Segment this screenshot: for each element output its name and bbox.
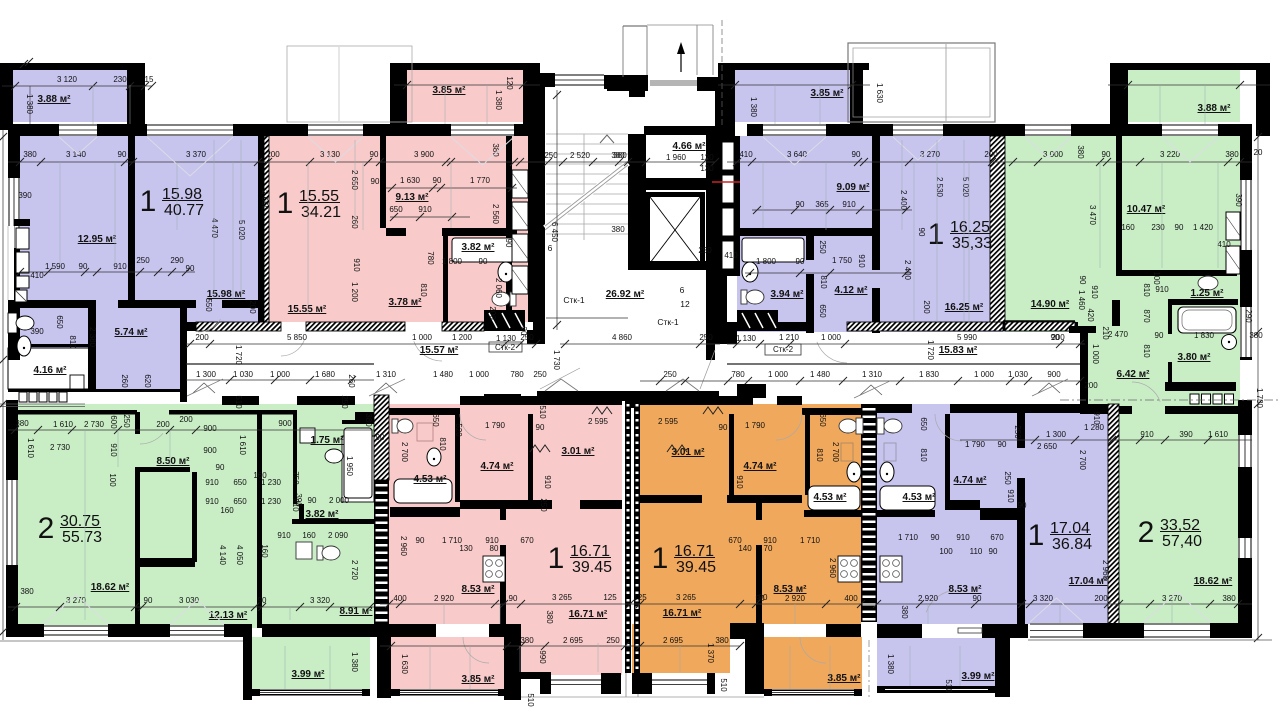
svg-text:400: 400 [393, 594, 407, 603]
svg-text:510: 510 [526, 693, 535, 707]
svg-text:4 470: 4 470 [210, 218, 219, 239]
svg-text:90: 90 [504, 239, 513, 248]
svg-text:Стк-1: Стк-1 [563, 295, 585, 305]
svg-text:380: 380 [1225, 150, 1239, 159]
svg-text:3.99 м²: 3.99 м² [962, 671, 996, 682]
svg-text:2 470: 2 470 [1108, 330, 1129, 339]
svg-text:2 595: 2 595 [658, 417, 679, 426]
svg-text:3 470: 3 470 [1088, 205, 1097, 226]
svg-text:2 720: 2 720 [350, 560, 359, 581]
svg-text:1 460: 1 460 [1077, 290, 1086, 311]
svg-text:380: 380 [611, 225, 625, 234]
svg-text:90: 90 [719, 423, 728, 432]
svg-text:3.82 м²: 3.82 м² [306, 509, 340, 520]
svg-text:1 380: 1 380 [749, 97, 758, 118]
svg-text:3.94 м²: 3.94 м² [771, 289, 805, 300]
svg-text:910: 910 [543, 475, 552, 489]
svg-text:3 120: 3 120 [57, 75, 78, 84]
svg-text:2 000: 2 000 [329, 496, 350, 505]
svg-text:90: 90 [1051, 333, 1060, 342]
svg-text:910: 910 [418, 205, 432, 214]
svg-text:250: 250 [340, 395, 349, 409]
svg-text:520: 520 [454, 423, 463, 437]
svg-text:250: 250 [1003, 471, 1012, 485]
svg-text:1: 1 [928, 218, 945, 251]
svg-text:100: 100 [1152, 271, 1161, 285]
svg-text:4 050: 4 050 [235, 545, 244, 566]
svg-text:4.74 м²: 4.74 м² [481, 461, 515, 472]
svg-text:4 140: 4 140 [218, 545, 227, 566]
svg-text:910: 910 [113, 262, 127, 271]
svg-text:380: 380 [1249, 331, 1263, 340]
svg-text:2 400: 2 400 [903, 260, 912, 281]
svg-text:160: 160 [260, 544, 269, 558]
svg-text:380: 380 [20, 587, 34, 596]
svg-text:1 610: 1 610 [53, 420, 74, 429]
svg-text:380: 380 [23, 150, 37, 159]
svg-text:810: 810 [68, 335, 77, 349]
svg-text:125: 125 [633, 593, 647, 602]
svg-text:1: 1 [652, 542, 669, 575]
svg-text:1 960: 1 960 [666, 153, 687, 162]
svg-text:1 730: 1 730 [1255, 388, 1264, 409]
svg-text:420: 420 [1086, 308, 1095, 322]
svg-text:1 380: 1 380 [886, 654, 895, 675]
svg-text:1 000: 1 000 [412, 333, 433, 342]
svg-text:90: 90 [79, 262, 88, 271]
svg-text:650: 650 [55, 315, 64, 329]
svg-text:9.13 м²: 9.13 м² [396, 192, 430, 203]
svg-text:160: 160 [253, 471, 267, 480]
svg-text:4 860: 4 860 [612, 333, 633, 342]
svg-text:200: 200 [179, 415, 193, 424]
svg-text:380: 380 [545, 610, 554, 624]
svg-text:510: 510 [719, 678, 728, 692]
svg-text:90: 90 [308, 496, 317, 505]
svg-text:230: 230 [113, 75, 127, 84]
svg-text:1 480: 1 480 [810, 370, 831, 379]
svg-text:410: 410 [724, 251, 738, 260]
svg-text:2 695: 2 695 [663, 636, 684, 645]
svg-text:1.25 м²: 1.25 м² [1191, 288, 1225, 299]
svg-text:810: 810 [438, 437, 447, 451]
svg-text:90: 90 [371, 177, 380, 186]
svg-text:90: 90 [216, 463, 225, 472]
svg-text:160: 160 [220, 506, 234, 515]
svg-text:910: 910 [1090, 285, 1099, 299]
svg-text:230: 230 [1151, 223, 1165, 232]
svg-text:110: 110 [970, 547, 983, 556]
svg-text:3.01 м²: 3.01 м² [562, 446, 596, 457]
svg-text:125: 125 [603, 593, 617, 602]
svg-text:750: 750 [291, 471, 300, 485]
svg-text:3.85 м²: 3.85 м² [433, 85, 467, 96]
svg-text:3 320: 3 320 [1033, 594, 1054, 603]
svg-text:90: 90 [796, 257, 805, 266]
svg-text:2 090: 2 090 [328, 531, 349, 540]
svg-text:2 530: 2 530 [935, 177, 944, 198]
svg-text:4.66 м²: 4.66 м² [673, 141, 707, 152]
svg-text:250: 250 [818, 240, 827, 254]
svg-text:18.62 м²: 18.62 м² [1194, 576, 1233, 587]
svg-text:4.74 м²: 4.74 м² [954, 475, 988, 486]
svg-text:3 270: 3 270 [920, 150, 941, 159]
svg-text:2 700: 2 700 [831, 442, 840, 463]
svg-text:1 130: 1 130 [496, 334, 517, 343]
svg-text:910: 910 [1140, 430, 1154, 439]
svg-text:3 265: 3 265 [552, 593, 573, 602]
svg-text:810: 810 [819, 275, 828, 289]
svg-text:4.53 м²: 4.53 м² [903, 492, 937, 503]
svg-text:365: 365 [815, 200, 829, 209]
svg-text:780: 780 [731, 370, 745, 379]
svg-text:810: 810 [815, 448, 824, 462]
svg-text:90: 90 [258, 596, 267, 605]
svg-text:4.74 м²: 4.74 м² [744, 461, 778, 472]
svg-text:90: 90 [1175, 223, 1184, 232]
svg-text:90: 90 [1155, 331, 1164, 340]
svg-text:55.73: 55.73 [62, 529, 102, 546]
svg-text:3.01 м²: 3.01 м² [672, 447, 706, 458]
svg-text:3.85 м²: 3.85 м² [462, 674, 496, 685]
svg-text:90: 90 [1102, 150, 1111, 159]
svg-text:1 830: 1 830 [919, 370, 940, 379]
svg-text:90: 90 [144, 596, 153, 605]
svg-text:3 000: 3 000 [1043, 150, 1064, 159]
svg-text:510: 510 [944, 679, 953, 693]
svg-text:2 960: 2 960 [399, 536, 408, 557]
svg-text:2 650: 2 650 [1037, 442, 1058, 451]
svg-text:250: 250 [544, 151, 558, 160]
svg-text:Стк-2: Стк-2 [773, 345, 794, 354]
svg-text:57,40: 57,40 [1162, 533, 1202, 550]
svg-text:1 800: 1 800 [756, 257, 777, 266]
svg-text:1 310: 1 310 [376, 370, 397, 379]
svg-text:15.83 м²: 15.83 м² [939, 345, 978, 356]
svg-text:2: 2 [1138, 516, 1155, 549]
svg-text:2 920: 2 920 [434, 594, 455, 603]
svg-text:10.47 м²: 10.47 м² [1127, 204, 1166, 215]
svg-text:200: 200 [248, 300, 257, 314]
svg-text:12: 12 [680, 299, 690, 309]
svg-text:910: 910 [205, 478, 219, 487]
svg-text:1 800: 1 800 [442, 257, 463, 266]
svg-text:36.84: 36.84 [1052, 536, 1092, 553]
svg-text:100: 100 [108, 473, 117, 487]
svg-text:200: 200 [195, 333, 209, 342]
svg-text:130: 130 [700, 164, 714, 173]
svg-text:2 920: 2 920 [918, 594, 939, 603]
svg-text:120: 120 [700, 153, 714, 162]
svg-text:2 380: 2 380 [88, 327, 97, 348]
svg-text:670: 670 [520, 536, 534, 545]
svg-text:650: 650 [431, 413, 440, 427]
svg-text:2 700: 2 700 [400, 442, 409, 463]
svg-text:1 380: 1 380 [25, 94, 34, 115]
svg-text:18.62 м²: 18.62 м² [91, 582, 130, 593]
svg-text:90: 90 [416, 536, 425, 545]
svg-text:780: 780 [510, 370, 524, 379]
svg-text:90: 90 [973, 594, 982, 603]
svg-text:2 695: 2 695 [563, 636, 584, 645]
svg-text:1 630: 1 630 [875, 83, 884, 104]
svg-text:90: 90 [1018, 501, 1027, 510]
svg-text:200: 200 [488, 306, 497, 320]
svg-text:3 270: 3 270 [1162, 594, 1183, 603]
svg-text:910: 910 [857, 254, 866, 268]
svg-text:3 370: 3 370 [186, 150, 207, 159]
svg-text:1 710: 1 710 [898, 533, 919, 542]
svg-text:870: 870 [1142, 309, 1151, 323]
svg-text:6: 6 [548, 243, 553, 253]
svg-text:250: 250 [663, 370, 677, 379]
svg-text:1: 1 [548, 542, 565, 575]
svg-text:3.78 м²: 3.78 м² [389, 297, 423, 308]
svg-text:1 480: 1 480 [433, 370, 454, 379]
svg-text:1 790: 1 790 [485, 421, 506, 430]
svg-text:39.45: 39.45 [572, 559, 612, 576]
svg-text:90: 90 [989, 547, 998, 556]
svg-text:2 920: 2 920 [785, 594, 806, 603]
svg-text:2 730: 2 730 [84, 420, 105, 429]
svg-text:90: 90 [852, 150, 861, 159]
svg-text:2 700: 2 700 [1078, 450, 1087, 471]
svg-text:1 000: 1 000 [821, 333, 842, 342]
svg-text:910: 910 [842, 200, 856, 209]
svg-text:810: 810 [1142, 344, 1151, 358]
svg-text:670: 670 [990, 533, 1004, 542]
svg-text:260: 260 [120, 374, 129, 388]
svg-text:1: 1 [1028, 519, 1045, 552]
svg-text:910: 910 [277, 531, 291, 540]
svg-text:810: 810 [419, 283, 428, 297]
svg-text:15: 15 [145, 75, 154, 84]
svg-text:250: 250 [698, 246, 712, 255]
svg-text:1 380: 1 380 [494, 90, 503, 111]
svg-text:910: 910 [1155, 285, 1169, 294]
svg-text:1 590: 1 590 [45, 262, 66, 271]
svg-text:510: 510 [234, 395, 243, 409]
svg-text:390: 390 [1234, 193, 1243, 207]
svg-text:3 270: 3 270 [66, 596, 87, 605]
svg-text:200: 200 [922, 300, 931, 314]
svg-text:8.53 м²: 8.53 м² [462, 584, 496, 595]
svg-text:910: 910 [956, 533, 970, 542]
svg-text:90: 90 [1078, 276, 1087, 285]
svg-text:1 420: 1 420 [1193, 223, 1214, 232]
svg-text:1 770: 1 770 [470, 176, 491, 185]
svg-text:90: 90 [370, 150, 379, 159]
svg-text:2 650: 2 650 [260, 190, 269, 211]
svg-text:390: 390 [18, 191, 32, 200]
svg-text:1 000: 1 000 [1091, 344, 1100, 365]
svg-text:3.88 м²: 3.88 м² [38, 94, 72, 105]
svg-text:4.16 м²: 4.16 м² [34, 365, 68, 376]
svg-text:39.45: 39.45 [676, 559, 716, 576]
svg-text:90: 90 [917, 228, 926, 237]
svg-text:650: 650 [818, 304, 827, 318]
svg-text:90: 90 [376, 433, 385, 442]
svg-text:160: 160 [302, 531, 316, 540]
svg-text:1: 1 [140, 185, 157, 218]
svg-text:1 790: 1 790 [745, 421, 766, 430]
svg-text:1 030: 1 030 [1008, 370, 1029, 379]
svg-text:Стк-1: Стк-1 [657, 317, 679, 327]
svg-text:3 140: 3 140 [66, 150, 87, 159]
svg-text:5 020: 5 020 [237, 220, 246, 241]
svg-text:200: 200 [1084, 381, 1098, 390]
svg-text:1 130: 1 130 [736, 334, 757, 343]
svg-text:260: 260 [347, 374, 356, 388]
svg-text:250: 250 [533, 370, 547, 379]
svg-text:5 850: 5 850 [287, 333, 308, 342]
svg-text:Стк-2: Стк-2 [495, 343, 516, 352]
svg-text:3 640: 3 640 [787, 150, 808, 159]
svg-text:910: 910 [109, 443, 118, 457]
svg-text:15.55 м²: 15.55 м² [288, 304, 327, 315]
svg-text:1 720: 1 720 [234, 345, 243, 366]
svg-text:900: 900 [203, 424, 217, 433]
svg-text:380: 380 [520, 636, 534, 645]
svg-text:620: 620 [143, 374, 152, 388]
svg-text:40.77: 40.77 [164, 202, 204, 219]
svg-text:1 370: 1 370 [706, 643, 715, 664]
svg-text:8.50 м²: 8.50 м² [157, 456, 191, 467]
svg-text:410: 410 [1217, 240, 1231, 249]
svg-text:6 450: 6 450 [550, 222, 559, 243]
svg-text:1 610: 1 610 [26, 438, 35, 459]
svg-text:1 610: 1 610 [238, 435, 247, 456]
svg-text:250: 250 [1013, 425, 1022, 439]
svg-text:2 960: 2 960 [828, 558, 837, 579]
svg-text:990: 990 [538, 650, 547, 664]
svg-text:1.75 м²: 1.75 м² [311, 435, 345, 446]
svg-text:290: 290 [170, 256, 184, 265]
svg-text:1 230: 1 230 [261, 497, 282, 506]
svg-text:3.85 м²: 3.85 м² [811, 88, 845, 99]
svg-text:130: 130 [459, 544, 473, 553]
svg-text:380: 380 [1222, 594, 1236, 603]
svg-text:600: 600 [109, 415, 118, 429]
svg-text:100: 100 [939, 547, 953, 556]
svg-text:16.71 м²: 16.71 м² [663, 608, 702, 619]
svg-text:16.71 м²: 16.71 м² [569, 609, 608, 620]
svg-text:120: 120 [505, 76, 514, 90]
svg-text:12.95 м²: 12.95 м² [78, 234, 117, 245]
svg-text:910: 910 [735, 475, 744, 489]
svg-text:1 380: 1 380 [350, 652, 359, 673]
svg-text:2 060: 2 060 [494, 278, 503, 299]
svg-text:380: 380 [1076, 145, 1085, 159]
svg-text:90: 90 [998, 440, 1007, 449]
svg-text:1 790: 1 790 [965, 440, 986, 449]
svg-text:90: 90 [931, 533, 940, 542]
svg-text:380: 380 [900, 605, 909, 619]
svg-text:3 265: 3 265 [676, 593, 697, 602]
svg-text:90: 90 [118, 150, 127, 159]
svg-text:15.57 м²: 15.57 м² [420, 345, 459, 356]
svg-text:90: 90 [186, 264, 195, 273]
svg-text:1 750: 1 750 [832, 256, 853, 265]
svg-text:910: 910 [352, 258, 361, 272]
svg-text:2 520: 2 520 [570, 151, 591, 160]
svg-text:390: 390 [1179, 430, 1193, 439]
svg-text:780: 780 [426, 251, 435, 265]
svg-text:1 000: 1 000 [270, 370, 291, 379]
svg-text:650: 650 [389, 205, 403, 214]
svg-text:250: 250 [699, 333, 713, 342]
svg-text:4.53 м²: 4.53 м² [414, 474, 448, 485]
svg-text:2: 2 [38, 512, 55, 545]
svg-text:250: 250 [136, 256, 150, 265]
svg-text:1 710: 1 710 [800, 536, 821, 545]
svg-text:250: 250 [606, 636, 620, 645]
svg-text:160: 160 [1121, 223, 1135, 232]
svg-text:1 300: 1 300 [1046, 430, 1067, 439]
svg-text:20: 20 [1254, 148, 1263, 157]
svg-text:400: 400 [844, 594, 858, 603]
svg-text:14.90 м²: 14.90 м² [1031, 299, 1070, 310]
svg-text:380: 380 [715, 636, 729, 645]
svg-text:1 300: 1 300 [196, 370, 217, 379]
svg-text:30: 30 [519, 327, 528, 336]
svg-text:650: 650 [818, 413, 827, 427]
svg-text:16.25 м²: 16.25 м² [945, 302, 984, 313]
svg-text:650: 650 [233, 478, 247, 487]
svg-text:35,33: 35,33 [952, 235, 992, 252]
svg-text:1 210: 1 210 [779, 333, 800, 342]
svg-text:1 030: 1 030 [233, 370, 254, 379]
svg-text:1 610: 1 610 [1208, 430, 1229, 439]
svg-text:140: 140 [738, 544, 752, 553]
svg-text:1 630: 1 630 [400, 176, 421, 185]
svg-text:4.53 м²: 4.53 м² [814, 492, 848, 503]
svg-text:2 400: 2 400 [899, 190, 908, 211]
svg-text:910: 910 [1006, 489, 1015, 503]
svg-text:650: 650 [919, 417, 928, 431]
svg-text:380: 380 [15, 419, 29, 428]
svg-text:80: 80 [490, 544, 499, 553]
svg-text:410: 410 [739, 150, 753, 159]
svg-text:290: 290 [1244, 309, 1253, 323]
svg-text:6.42 м²: 6.42 м² [1117, 369, 1151, 380]
svg-text:70: 70 [764, 544, 773, 553]
svg-text:1 000: 1 000 [469, 370, 490, 379]
svg-text:90: 90 [759, 593, 768, 602]
svg-text:34.21: 34.21 [301, 204, 341, 221]
svg-text:1 310: 1 310 [862, 370, 883, 379]
svg-text:250: 250 [539, 498, 548, 512]
svg-text:1 830: 1 830 [1194, 331, 1215, 340]
svg-text:380: 380 [611, 151, 625, 160]
svg-text:900: 900 [203, 446, 217, 455]
svg-text:3 320: 3 320 [310, 596, 331, 605]
svg-text:90: 90 [796, 200, 805, 209]
svg-text:90: 90 [509, 594, 518, 603]
svg-text:2 730: 2 730 [50, 443, 71, 452]
svg-text:3.82 м²: 3.82 м² [462, 242, 496, 253]
svg-text:650: 650 [233, 497, 247, 506]
svg-text:1 680: 1 680 [315, 370, 336, 379]
svg-text:810: 810 [919, 448, 928, 462]
svg-text:200: 200 [156, 420, 170, 429]
svg-text:250: 250 [122, 414, 131, 428]
svg-text:1 000: 1 000 [768, 370, 789, 379]
svg-text:90: 90 [479, 257, 488, 266]
svg-text:1: 1 [277, 187, 294, 220]
svg-text:2 595: 2 595 [588, 417, 609, 426]
svg-text:5 990: 5 990 [957, 333, 978, 342]
